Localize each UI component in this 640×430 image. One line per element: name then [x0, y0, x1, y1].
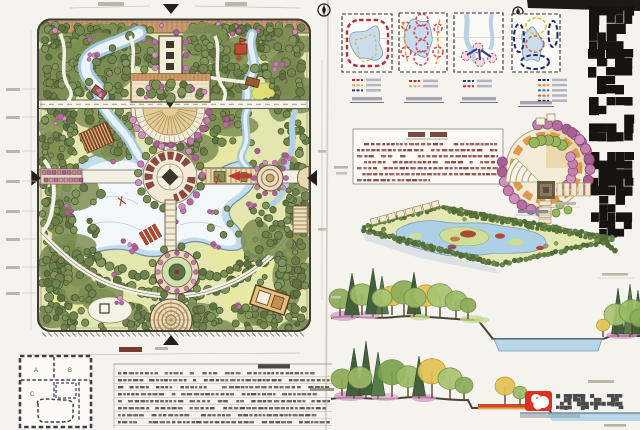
svg-text:A: A [34, 368, 38, 374]
svg-text:B: B [68, 368, 72, 374]
svg-text:C: C [30, 392, 35, 398]
